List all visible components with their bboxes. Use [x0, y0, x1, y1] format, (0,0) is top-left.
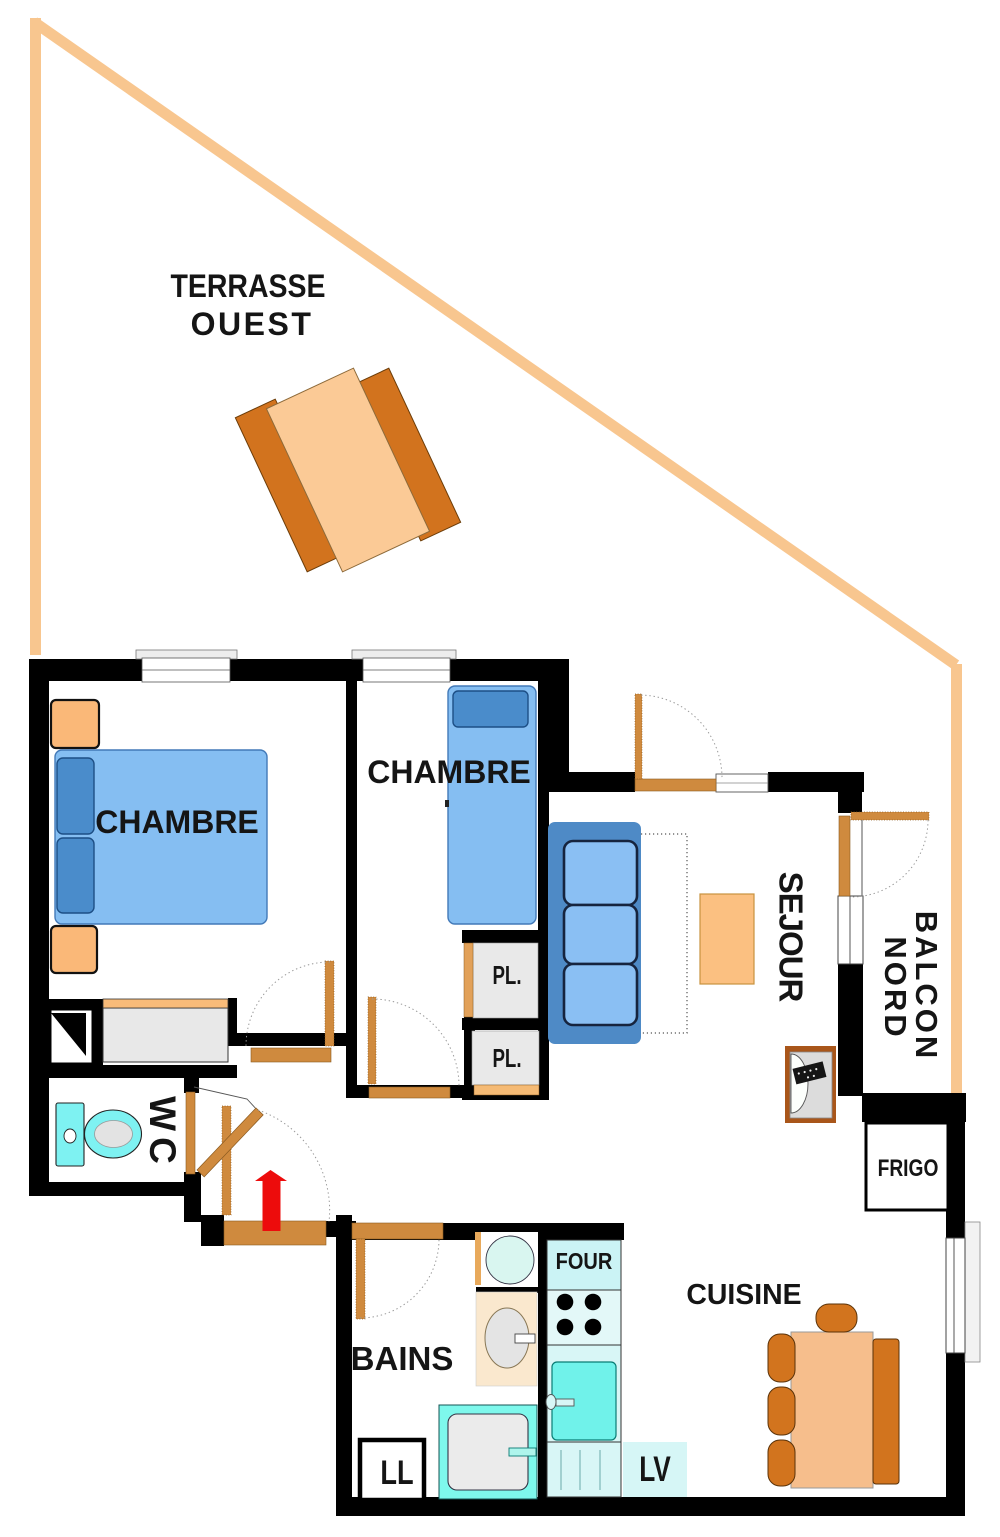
- svg-text:CHAMBRE: CHAMBRE: [367, 754, 531, 790]
- svg-text:FRIGO: FRIGO: [878, 1154, 939, 1182]
- svg-text:NORD: NORD: [878, 936, 913, 1039]
- svg-text:BAINS: BAINS: [351, 1340, 454, 1377]
- svg-text:CHAMBRE: CHAMBRE: [95, 804, 259, 840]
- svg-text:SEJOUR: SEJOUR: [773, 872, 810, 1003]
- svg-text:LV: LV: [639, 1449, 671, 1489]
- svg-text:BALCON: BALCON: [909, 911, 944, 1062]
- svg-text:PL.: PL.: [492, 960, 521, 990]
- svg-text:OUEST: OUEST: [191, 306, 314, 342]
- svg-text:LL: LL: [380, 1453, 413, 1492]
- svg-text:CUISINE: CUISINE: [686, 1279, 801, 1311]
- svg-text:FOUR: FOUR: [556, 1248, 613, 1275]
- svg-text:TERRASSE: TERRASSE: [170, 270, 325, 305]
- svg-text:WC: WC: [142, 1096, 183, 1170]
- svg-text:PL.: PL.: [492, 1043, 521, 1073]
